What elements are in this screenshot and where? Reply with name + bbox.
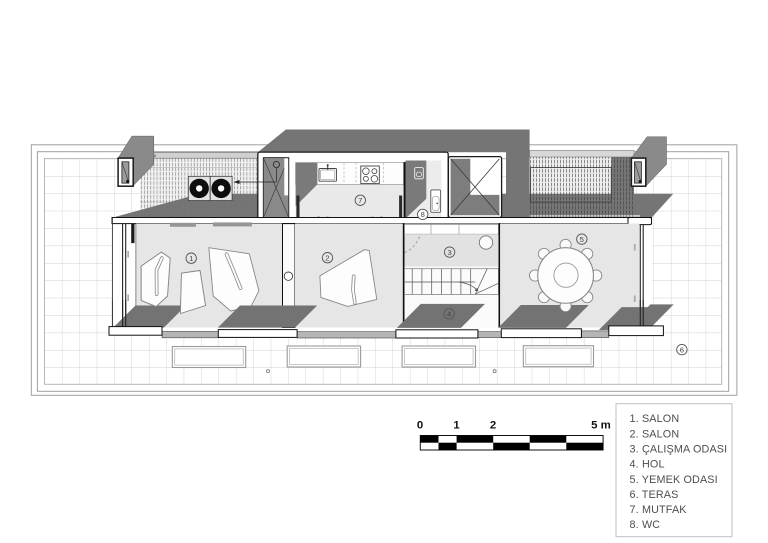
svg-text:8: 8 bbox=[421, 210, 425, 219]
svg-text:2: 2 bbox=[325, 253, 329, 262]
svg-text:3. ÇALIŞMA ODASI: 3. ÇALIŞMA ODASI bbox=[630, 444, 728, 456]
svg-text:4: 4 bbox=[447, 310, 451, 319]
svg-text:6. TERAS: 6. TERAS bbox=[630, 489, 679, 501]
svg-text:2: 2 bbox=[490, 420, 496, 432]
svg-text:7: 7 bbox=[358, 196, 362, 205]
svg-text:0: 0 bbox=[417, 420, 423, 432]
svg-text:7. MUTFAK: 7. MUTFAK bbox=[630, 504, 688, 516]
svg-text:1: 1 bbox=[189, 254, 193, 263]
svg-text:3: 3 bbox=[447, 248, 451, 257]
svg-text:4. HOL: 4. HOL bbox=[630, 459, 665, 471]
svg-text:8. WC: 8. WC bbox=[630, 519, 661, 531]
svg-text:5 m: 5 m bbox=[591, 420, 611, 432]
svg-text:1: 1 bbox=[453, 420, 460, 432]
svg-text:1. SALON: 1. SALON bbox=[630, 413, 680, 425]
svg-text:5. YEMEK ODASI: 5. YEMEK ODASI bbox=[630, 474, 718, 486]
svg-text:6: 6 bbox=[680, 345, 684, 354]
svg-text:2. SALON: 2. SALON bbox=[630, 428, 680, 440]
svg-text:5: 5 bbox=[580, 235, 584, 244]
